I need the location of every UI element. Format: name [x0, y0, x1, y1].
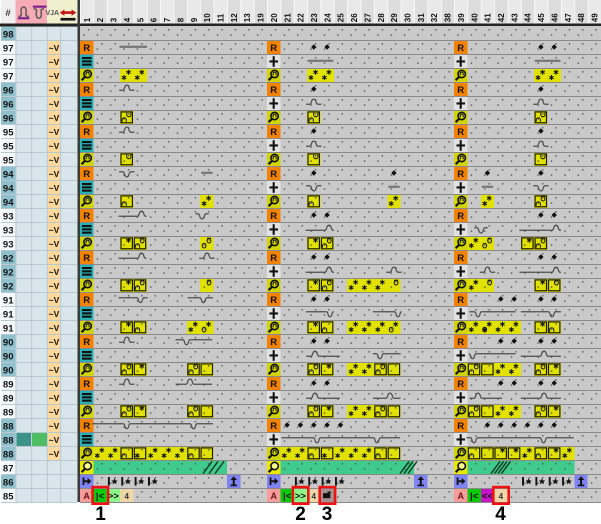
svg-text:~V: ~V [49, 449, 60, 459]
svg-text:19: 19 [257, 13, 266, 22]
svg-text:~V: ~V [49, 337, 60, 347]
svg-text:R: R [457, 127, 464, 138]
svg-text:R: R [270, 379, 277, 390]
svg-text:R: R [83, 295, 90, 306]
svg-text:90: 90 [3, 337, 14, 348]
svg-text:97: 97 [3, 71, 14, 82]
svg-text:R: R [457, 169, 464, 180]
svg-text:R: R [83, 211, 90, 222]
svg-text:88: 88 [3, 421, 14, 432]
svg-text:~V: ~V [49, 407, 60, 417]
svg-text:4: 4 [499, 492, 504, 501]
svg-text:45: 45 [537, 13, 546, 22]
svg-text:R: R [270, 43, 277, 54]
svg-text:~V: ~V [49, 393, 60, 403]
svg-text:~V: ~V [49, 295, 60, 305]
svg-text:R: R [270, 253, 277, 264]
svg-text:~V: ~V [49, 225, 60, 235]
svg-text:A: A [457, 491, 464, 501]
svg-text:~V: ~V [49, 71, 60, 81]
svg-text:A: A [270, 491, 277, 501]
svg-text:6: 6 [150, 17, 159, 22]
svg-text:46: 46 [550, 13, 559, 22]
svg-text:90: 90 [3, 365, 14, 376]
svg-text:~V: ~V [49, 309, 60, 319]
svg-text:96: 96 [3, 113, 14, 124]
svg-text:13: 13 [243, 13, 252, 22]
svg-text:R: R [457, 253, 464, 264]
svg-text:~V: ~V [49, 169, 60, 179]
svg-text:R: R [270, 127, 277, 138]
svg-text:1: 1 [83, 17, 92, 22]
svg-text:~V: ~V [49, 239, 60, 249]
svg-text:|<: |< [470, 491, 479, 502]
svg-text:90: 90 [3, 351, 14, 362]
svg-text:R: R [457, 211, 464, 222]
svg-text:97: 97 [3, 57, 14, 68]
svg-text:9: 9 [190, 17, 199, 22]
svg-text:4: 4 [125, 492, 130, 501]
svg-text:43: 43 [510, 13, 519, 22]
svg-text:R: R [457, 379, 464, 390]
svg-text:22: 22 [297, 13, 306, 22]
svg-text:30: 30 [404, 13, 413, 22]
svg-text:97: 97 [3, 43, 14, 54]
svg-text:|<: |< [96, 491, 105, 502]
svg-text:47: 47 [564, 13, 573, 22]
svg-text:R: R [457, 295, 464, 306]
svg-text:95: 95 [3, 155, 14, 166]
svg-text:R: R [83, 127, 90, 138]
svg-text:5: 5 [136, 17, 145, 22]
svg-text:#: # [5, 8, 11, 19]
svg-text:~V: ~V [49, 183, 60, 193]
svg-text:~V: ~V [49, 127, 60, 137]
svg-text:86: 86 [3, 477, 14, 488]
svg-text:89: 89 [3, 393, 14, 404]
svg-text:91: 91 [3, 309, 14, 320]
svg-text:~V: ~V [49, 435, 60, 445]
svg-text:89: 89 [3, 379, 14, 390]
svg-text:~V: ~V [49, 211, 60, 221]
svg-text:R: R [83, 421, 90, 432]
svg-text:R: R [83, 169, 90, 180]
svg-text:~V: ~V [49, 365, 60, 375]
svg-text:4: 4 [312, 492, 317, 501]
svg-text:41: 41 [484, 13, 493, 22]
svg-text:94: 94 [3, 197, 14, 208]
svg-text:~V: ~V [49, 267, 60, 277]
svg-text:R: R [270, 169, 277, 180]
svg-text:~V: ~V [49, 351, 60, 361]
svg-text:3: 3 [322, 504, 333, 524]
svg-text:29: 29 [390, 13, 399, 22]
svg-text:~V: ~V [49, 85, 60, 95]
svg-text:2: 2 [295, 504, 306, 524]
svg-text:R: R [83, 43, 90, 54]
svg-text:~V: ~V [49, 421, 60, 431]
svg-text:42: 42 [497, 13, 506, 22]
svg-text:11: 11 [217, 13, 226, 22]
svg-text:8: 8 [176, 17, 185, 22]
svg-text:~V: ~V [49, 253, 60, 263]
svg-text:4: 4 [495, 504, 506, 524]
svg-text:31: 31 [417, 13, 426, 22]
svg-text:~V: ~V [49, 281, 60, 291]
svg-text:R: R [270, 421, 277, 432]
svg-text:38: 38 [444, 13, 453, 22]
svg-text:~V: ~V [49, 197, 60, 207]
svg-text:1: 1 [95, 504, 106, 524]
svg-text:R: R [270, 211, 277, 222]
svg-text:R: R [83, 253, 90, 264]
svg-text:44: 44 [524, 13, 533, 22]
svg-text:92: 92 [3, 281, 14, 292]
svg-text:~V: ~V [49, 57, 60, 67]
svg-text:R: R [457, 85, 464, 96]
svg-text:88: 88 [3, 449, 14, 460]
svg-text:~V: ~V [49, 323, 60, 333]
svg-text:95: 95 [3, 127, 14, 138]
svg-text:91: 91 [3, 295, 14, 306]
svg-text:3: 3 [110, 17, 119, 22]
svg-text:26: 26 [350, 13, 359, 22]
svg-text:~V: ~V [49, 155, 60, 165]
svg-text:92: 92 [3, 267, 14, 278]
svg-text:>>: >> [295, 491, 307, 502]
svg-text:~V: ~V [49, 141, 60, 151]
svg-text:2: 2 [96, 17, 105, 22]
svg-text:>>: >> [108, 491, 120, 502]
svg-text:R: R [83, 85, 90, 96]
svg-text:94: 94 [3, 183, 14, 194]
svg-text:R: R [270, 337, 277, 348]
svg-text:87: 87 [3, 463, 14, 474]
svg-text:R: R [270, 295, 277, 306]
svg-text:89: 89 [3, 407, 14, 418]
svg-text:48: 48 [577, 13, 586, 22]
svg-text:A: A [83, 491, 90, 501]
svg-text:96: 96 [3, 85, 14, 96]
svg-text:24: 24 [323, 13, 332, 22]
svg-text:94: 94 [3, 169, 14, 180]
svg-text:95: 95 [3, 141, 14, 152]
svg-text:~V: ~V [49, 113, 60, 123]
svg-text:12: 12 [230, 13, 239, 22]
svg-text:|<: |< [283, 491, 292, 502]
svg-text:98: 98 [3, 29, 14, 40]
svg-text:<<: << [482, 491, 494, 502]
svg-text:R: R [457, 421, 464, 432]
svg-text:96: 96 [3, 99, 14, 110]
svg-text:49: 49 [591, 13, 600, 22]
svg-text:VJA: VJA [45, 10, 59, 17]
svg-text:92: 92 [3, 253, 14, 264]
svg-text:85: 85 [3, 491, 14, 502]
svg-text:10: 10 [203, 13, 212, 22]
svg-text:R: R [83, 379, 90, 390]
svg-text:R: R [270, 85, 277, 96]
svg-text:~V: ~V [49, 99, 60, 109]
svg-text:88: 88 [3, 435, 14, 446]
svg-text:4: 4 [123, 17, 132, 22]
svg-text:23: 23 [310, 13, 319, 22]
svg-text:39: 39 [457, 13, 466, 22]
svg-text:40: 40 [470, 13, 479, 22]
svg-text:R: R [457, 337, 464, 348]
svg-text:91: 91 [3, 323, 14, 334]
svg-text:~V: ~V [49, 379, 60, 389]
svg-text:20: 20 [270, 13, 279, 22]
svg-text:32: 32 [430, 13, 439, 22]
svg-text:27: 27 [363, 13, 372, 22]
svg-text:R: R [457, 43, 464, 54]
svg-text:~V: ~V [49, 43, 60, 53]
svg-text:21: 21 [283, 13, 292, 22]
svg-text:28: 28 [377, 13, 386, 22]
svg-text:R: R [83, 337, 90, 348]
svg-text:7: 7 [163, 17, 172, 22]
svg-text:25: 25 [337, 13, 346, 22]
svg-text:93: 93 [3, 239, 14, 250]
svg-text:93: 93 [3, 225, 14, 236]
svg-text:93: 93 [3, 211, 14, 222]
